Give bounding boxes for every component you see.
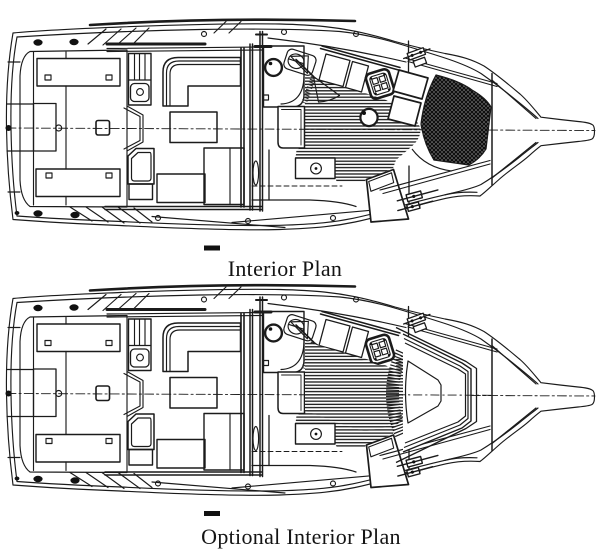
svg-text:Interior Plan: Interior Plan [228, 256, 342, 281]
svg-text:Optional Interior Plan: Optional Interior Plan [201, 524, 401, 549]
